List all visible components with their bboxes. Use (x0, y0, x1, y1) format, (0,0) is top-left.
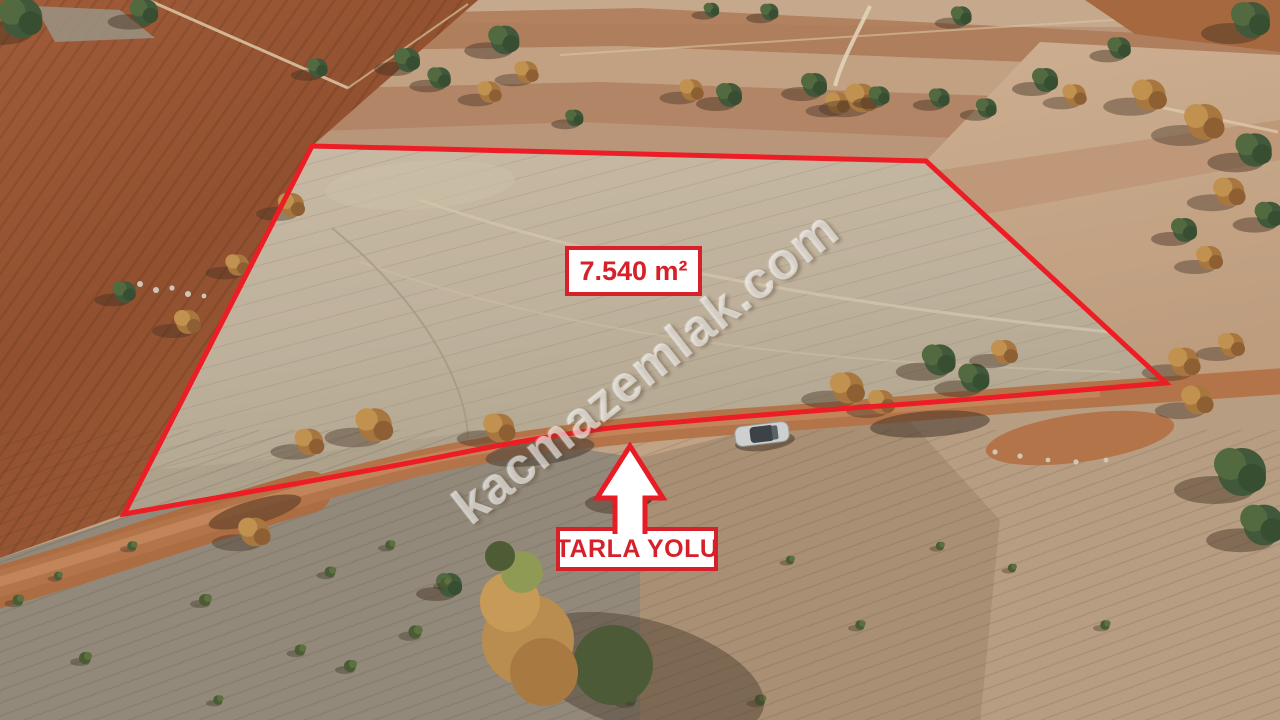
area-label: 7.540 m² (579, 256, 687, 287)
up-arrow-icon (593, 442, 667, 538)
road-label: TARLA YOLU (556, 535, 719, 564)
aerial-photo: kacmazemlak.com 7.540 m² TARLA YOLU (0, 0, 1280, 720)
area-label-box: 7.540 m² (565, 246, 702, 296)
